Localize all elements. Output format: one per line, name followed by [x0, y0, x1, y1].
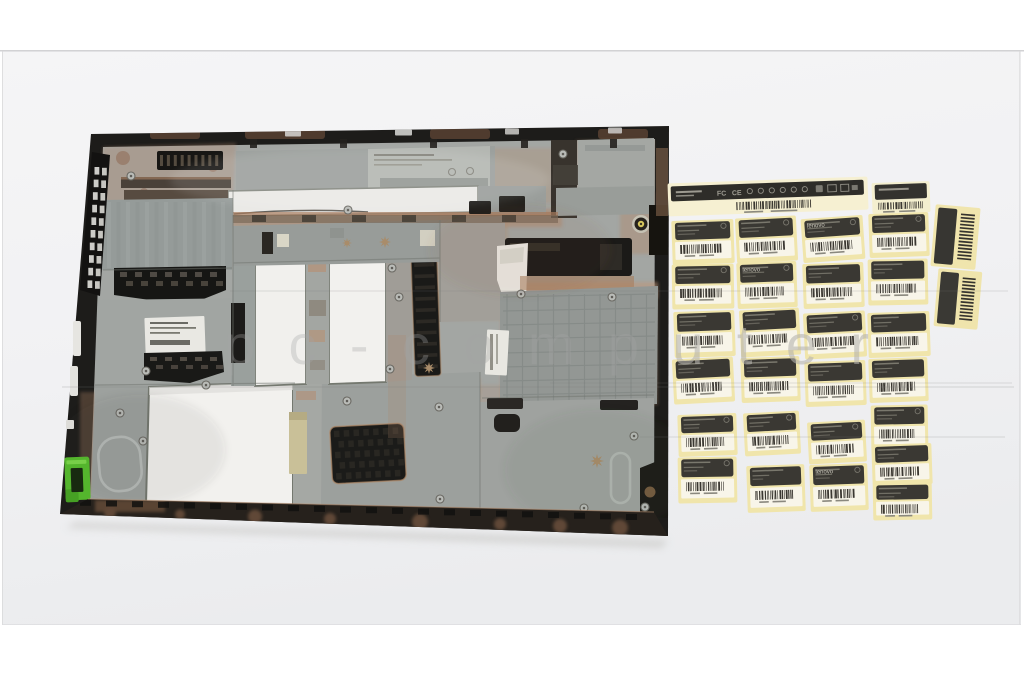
svg-text:FC: FC	[717, 190, 727, 197]
svg-text:CE: CE	[732, 190, 742, 197]
